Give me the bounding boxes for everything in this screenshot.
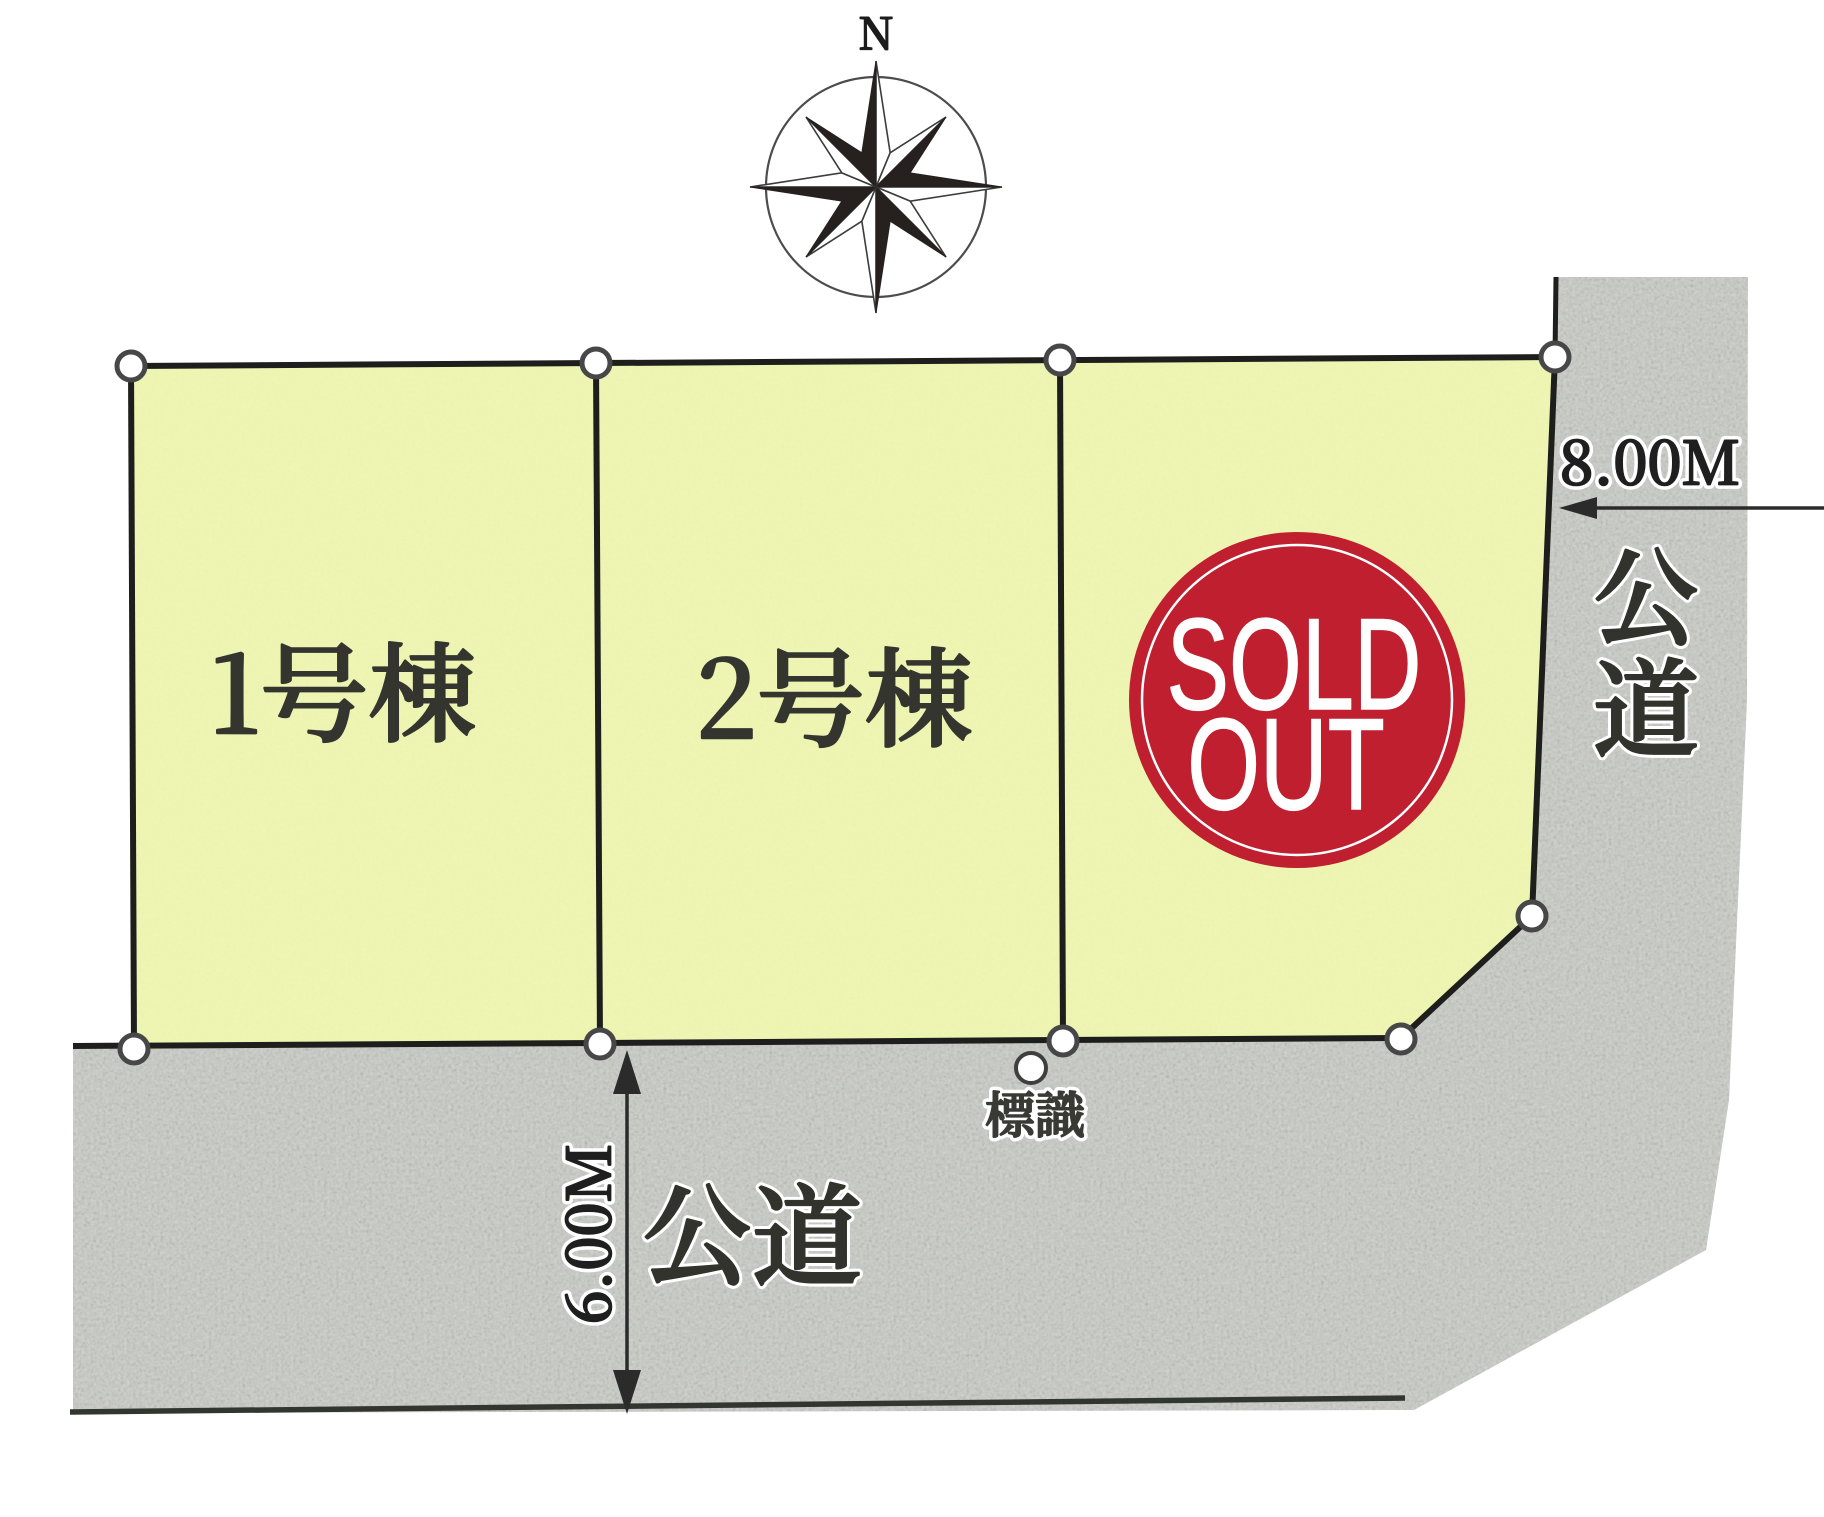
svg-text:OUT: OUT [1187, 692, 1385, 838]
